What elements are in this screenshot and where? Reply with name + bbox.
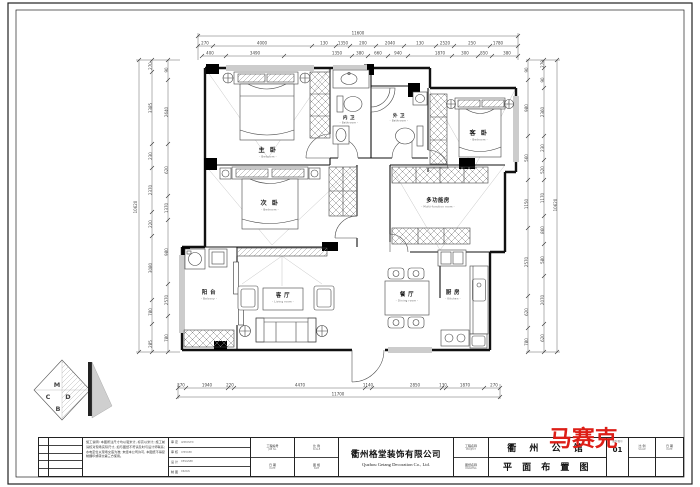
svg-text:400: 400 bbox=[206, 51, 214, 56]
approval-label: 制 图 bbox=[171, 470, 178, 474]
svg-text:270: 270 bbox=[148, 62, 153, 70]
svg-text:90: 90 bbox=[540, 77, 545, 83]
svg-text:- Bedroom -: - Bedroom - bbox=[261, 208, 278, 212]
info-col-2: 比 例SCALE 图 幅SIZE bbox=[295, 438, 339, 476]
svg-text:780: 780 bbox=[524, 338, 529, 346]
svg-text:780: 780 bbox=[164, 334, 169, 342]
svg-text:250: 250 bbox=[468, 41, 476, 46]
svg-text:2640: 2640 bbox=[164, 106, 169, 117]
inner-bath-fixtures bbox=[333, 70, 369, 144]
floor-plan-canvas: 11600 270 4000 130 1350 200 2040 130 252… bbox=[0, 0, 700, 487]
svg-text:860: 860 bbox=[540, 226, 545, 234]
label-master: 主 卧 bbox=[258, 146, 277, 154]
furniture bbox=[184, 70, 514, 348]
label-wai-wei: 外 卫 bbox=[393, 112, 405, 119]
svg-text:- Dining room -: - Dining room - bbox=[396, 299, 418, 303]
svg-text:- Bedroom -: - Bedroom - bbox=[470, 138, 487, 142]
scale-cell: 比 例SCALE bbox=[629, 438, 656, 476]
svg-text:620: 620 bbox=[524, 308, 529, 316]
revision-col-1 bbox=[39, 438, 49, 476]
svg-text:780: 780 bbox=[148, 308, 153, 316]
dim-left-total: 10620 bbox=[133, 200, 138, 213]
company-block: 衢州格堂装饰有限公司 Quzhou Getang Decoration Co.,… bbox=[339, 438, 454, 476]
svg-text:980: 980 bbox=[524, 104, 529, 112]
hall-bench bbox=[438, 250, 466, 266]
svg-text:270: 270 bbox=[490, 383, 498, 388]
stamp-letter-b: B bbox=[56, 405, 61, 413]
svg-text:220: 220 bbox=[226, 383, 234, 388]
company-logo-text: 马赛克 bbox=[549, 429, 618, 451]
svg-text:2040: 2040 bbox=[385, 41, 396, 46]
svg-text:980: 980 bbox=[164, 248, 169, 256]
svg-text:220: 220 bbox=[148, 220, 153, 228]
approval-label: 审 定 bbox=[171, 440, 178, 444]
svg-text:2360: 2360 bbox=[540, 106, 545, 117]
svg-text:4470: 4470 bbox=[295, 383, 306, 388]
svg-text:300: 300 bbox=[461, 51, 469, 56]
svg-text:230: 230 bbox=[148, 152, 153, 160]
label-dining: 餐 厅 bbox=[400, 290, 414, 298]
svg-text:1780: 1780 bbox=[493, 41, 504, 46]
svg-text:620: 620 bbox=[164, 166, 169, 174]
label-living: 客 厅 bbox=[276, 291, 290, 299]
svg-text:2570: 2570 bbox=[164, 294, 169, 305]
svg-text:- Kitchen -: - Kitchen - bbox=[445, 297, 460, 301]
master-bed bbox=[223, 72, 310, 140]
dim-right-total: 10620 bbox=[553, 198, 558, 211]
entry-door bbox=[352, 350, 384, 382]
svg-text:230: 230 bbox=[540, 144, 545, 152]
stamp-letter-d: D bbox=[65, 393, 71, 401]
info-col-1: 工程编号JOB No. 日 期DATE bbox=[251, 438, 295, 476]
svg-text:90: 90 bbox=[164, 67, 169, 73]
label-kitchen: 厨 房 bbox=[446, 288, 460, 296]
svg-text:1870: 1870 bbox=[460, 383, 471, 388]
svg-text:1350: 1350 bbox=[332, 51, 343, 56]
stamp-letter-m: M bbox=[54, 381, 60, 389]
master-wardrobe bbox=[310, 72, 330, 138]
svg-text:2850: 2850 bbox=[410, 383, 421, 388]
kitchen-fixtures bbox=[441, 266, 488, 348]
second-bed bbox=[220, 167, 320, 229]
svg-text:1170: 1170 bbox=[540, 192, 545, 203]
svg-text:3490: 3490 bbox=[250, 51, 261, 56]
approval-label: 审 核 bbox=[171, 450, 178, 454]
label-multi: 多功能房 bbox=[426, 196, 450, 204]
svg-text:560: 560 bbox=[524, 154, 529, 162]
svg-text:850: 850 bbox=[480, 51, 488, 56]
label-balcony: 阳 台 bbox=[202, 288, 216, 296]
svg-text:- Living room -: - Living room - bbox=[272, 300, 294, 304]
svg-text:2370: 2370 bbox=[148, 184, 153, 195]
revision-col-2 bbox=[49, 438, 83, 476]
svg-text:130: 130 bbox=[439, 383, 447, 388]
label-second: 次 卧 bbox=[260, 199, 279, 207]
approval-rows: 审 定APPROVED 审 核CHECKED 设 计DESIGNED 制 图DR… bbox=[169, 438, 251, 476]
svg-text:130: 130 bbox=[320, 41, 328, 46]
svg-text:200: 200 bbox=[359, 41, 367, 46]
label-nei-wei: 内 卫 bbox=[343, 114, 355, 121]
tv-wall-decor bbox=[237, 248, 327, 256]
guest-wardrobe bbox=[430, 94, 447, 164]
svg-text:620: 620 bbox=[540, 334, 545, 342]
svg-text:- Bedroom -: - Bedroom - bbox=[259, 155, 276, 159]
guest-bed bbox=[447, 98, 514, 157]
company-stamp: M C D B bbox=[34, 360, 112, 420]
svg-text:1150: 1150 bbox=[524, 198, 529, 209]
svg-text:520: 520 bbox=[540, 166, 545, 174]
svg-text:130: 130 bbox=[416, 41, 424, 46]
svg-text:380: 380 bbox=[356, 51, 364, 56]
svg-text:270: 270 bbox=[177, 383, 185, 388]
dim-bottom-total: 11700 bbox=[332, 392, 345, 397]
svg-text:1870: 1870 bbox=[435, 51, 446, 56]
svg-text:1940: 1940 bbox=[202, 383, 213, 388]
svg-text:3080: 3080 bbox=[148, 262, 153, 273]
multi-cabinet-bottom bbox=[392, 228, 470, 244]
drawing-name: 平 面 布 置 图 bbox=[489, 458, 606, 477]
dining-set bbox=[385, 268, 429, 328]
drawing-sheet: 11600 270 4000 130 1350 200 2040 130 252… bbox=[0, 0, 700, 487]
svg-text:660: 660 bbox=[374, 51, 382, 56]
company-name-cn: 衢州格堂装饰有限公司 bbox=[351, 448, 441, 460]
approval-label: 设 计 bbox=[171, 460, 178, 464]
name-labels: 工程名称PROJECT 图纸名称DRAWING bbox=[454, 438, 489, 476]
svg-text:285: 285 bbox=[148, 340, 153, 348]
svg-text:380: 380 bbox=[503, 51, 511, 56]
svg-text:- Multi-function room -: - Multi-function room - bbox=[421, 205, 455, 209]
svg-text:1350: 1350 bbox=[338, 41, 349, 46]
label-guest: 客 卧 bbox=[468, 129, 488, 137]
svg-text:1370: 1370 bbox=[164, 202, 169, 213]
date-cell: 日 期DATE bbox=[656, 438, 683, 476]
dim-top-total: 11600 bbox=[352, 31, 365, 36]
svg-text:3385: 3385 bbox=[148, 102, 153, 113]
svg-text:- Bathroom -: - Bathroom - bbox=[340, 121, 359, 125]
svg-text:- Balcony -: - Balcony - bbox=[201, 297, 217, 301]
svg-text:270: 270 bbox=[201, 41, 209, 46]
svg-text:2520: 2520 bbox=[440, 41, 451, 46]
svg-text:940: 940 bbox=[394, 51, 402, 56]
svg-text:4000: 4000 bbox=[257, 41, 268, 46]
svg-text:2070: 2070 bbox=[540, 294, 545, 305]
stamp-letter-c: C bbox=[46, 393, 51, 401]
notes-block: 施工说明: 本图所注尺寸均以毫米计, 标高以米计; 施工前请核对现场实际尺寸, … bbox=[83, 438, 169, 476]
svg-text:- Bathroom -: - Bathroom - bbox=[390, 119, 409, 123]
svg-text:90: 90 bbox=[524, 67, 529, 73]
svg-text:2570: 2570 bbox=[524, 256, 529, 267]
company-name-en: Quzhou Getang Decoration Co., Ltd. bbox=[362, 462, 430, 467]
svg-text:1140: 1140 bbox=[363, 383, 374, 388]
svg-text:580: 580 bbox=[540, 256, 545, 264]
svg-text:270: 270 bbox=[540, 60, 545, 68]
